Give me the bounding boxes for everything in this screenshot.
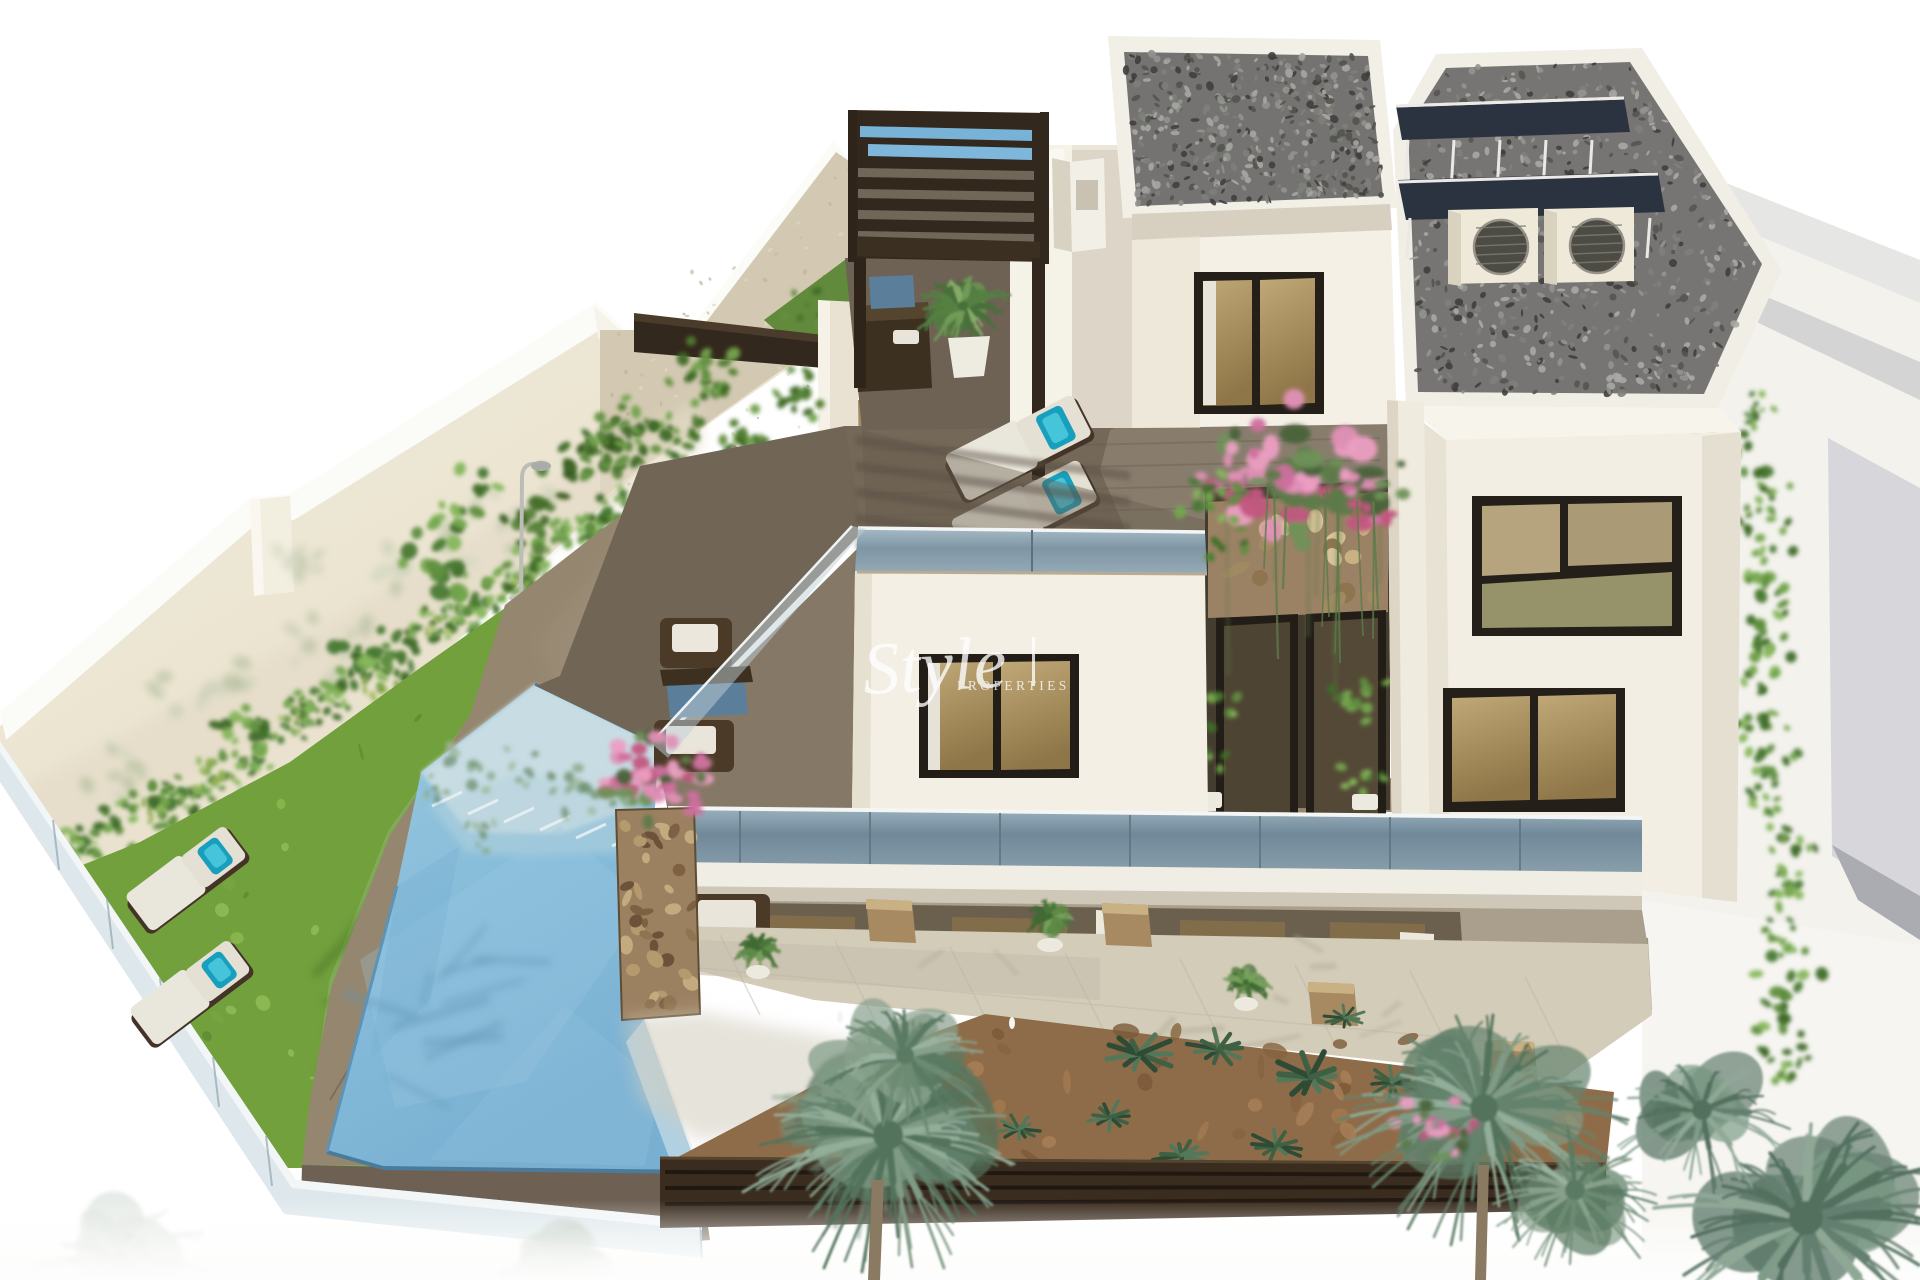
svg-text:PROPERTIES: PROPERTIES <box>957 678 1070 693</box>
svg-text:Style: Style <box>861 622 1009 711</box>
